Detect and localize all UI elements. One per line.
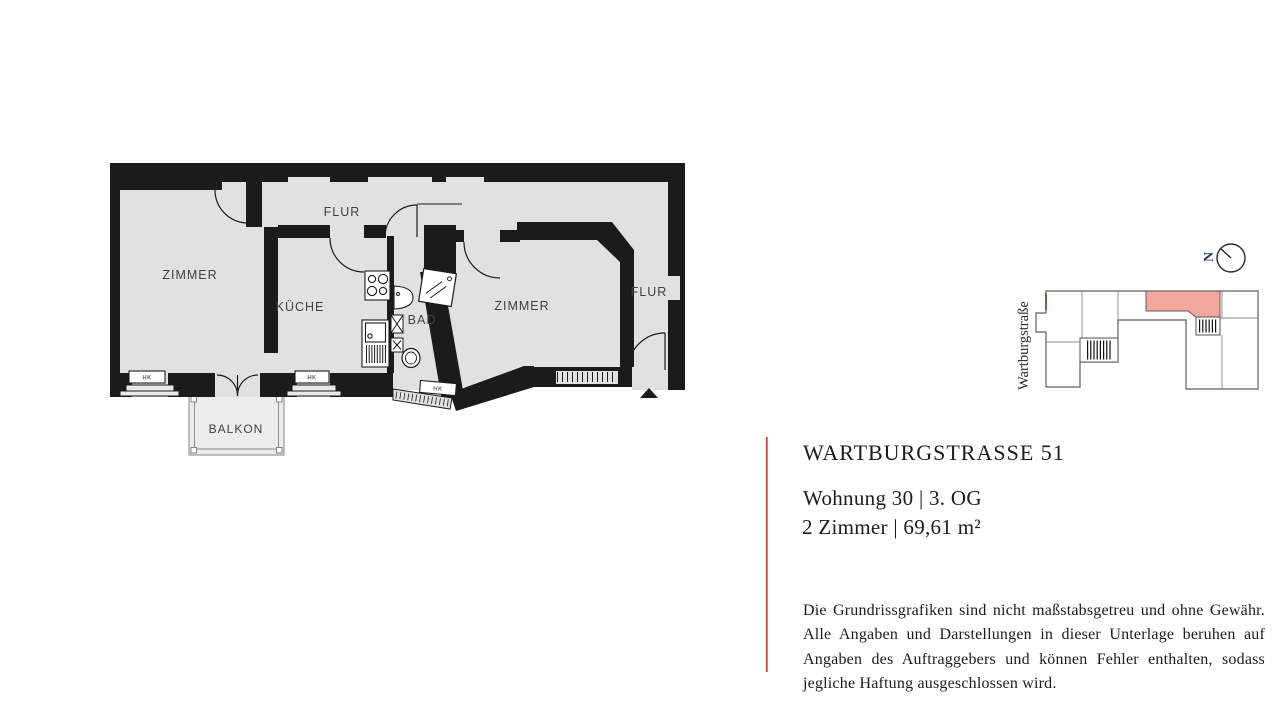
- balcony: BALKON: [189, 396, 284, 455]
- room-label-flur-right: FLUR: [631, 285, 668, 299]
- north-label: N: [1202, 252, 1217, 262]
- page-title: WARTBURGSTRASSE 51: [803, 440, 1065, 466]
- room-label-zimmer-right: ZIMMER: [494, 299, 549, 313]
- stairwell-2: [1196, 317, 1220, 335]
- site-map: Wartburgstraße N: [1016, 244, 1258, 390]
- street-label: Wartburgstraße: [1016, 301, 1032, 390]
- size-line: 2 Zimmer | 69,61 m²: [802, 515, 981, 540]
- toilet: [402, 349, 420, 368]
- room-label-kueche: KÜCHE: [276, 300, 325, 314]
- washer-connection: [391, 315, 403, 352]
- radiator-label: HK: [307, 376, 316, 382]
- stairwell-1: [1080, 338, 1118, 362]
- room-label-bad: BAD: [408, 313, 437, 327]
- radiator-label: HK: [142, 376, 151, 382]
- page: BALKON: [0, 0, 1287, 702]
- accent-rule: [766, 437, 768, 672]
- shower: [419, 269, 457, 307]
- radiator-label: HK: [433, 386, 443, 393]
- floorplan-graphic: BALKON: [0, 0, 1287, 702]
- room-label-zimmer-left: ZIMMER: [162, 268, 217, 282]
- kitchen-sink: [362, 320, 389, 367]
- stove: [365, 271, 390, 300]
- unit-line: Wohnung 30 | 3. OG: [803, 486, 982, 511]
- room-label-flur-top: FLUR: [324, 205, 361, 219]
- disclaimer-text: Die Grundrissgrafiken sind nicht maßstab…: [803, 599, 1265, 697]
- room-label-balkon: BALKON: [209, 422, 264, 436]
- north-compass: N: [1202, 244, 1245, 272]
